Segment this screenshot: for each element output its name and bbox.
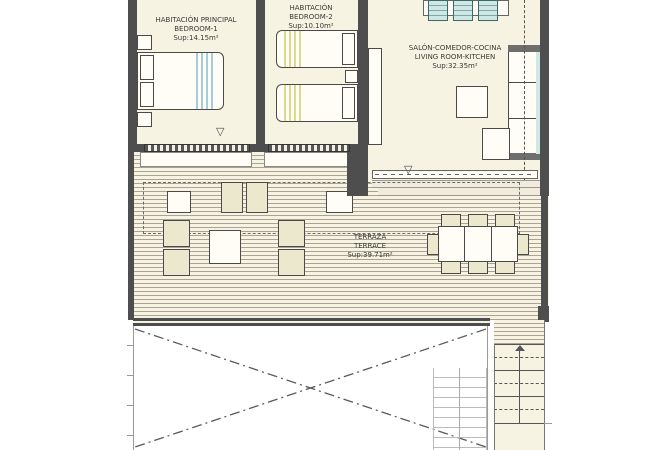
- terrace-edge-wall: [133, 318, 490, 326]
- living-sliding-door-rail: [375, 174, 535, 175]
- bedroom2-nightstand: [345, 70, 358, 83]
- stair-tick: [544, 423, 552, 424]
- lower-staircase-stringer: [459, 368, 460, 450]
- bedroom2-label: HABITACIÓN BEDROOM-2 Sup:10.10m²: [266, 4, 356, 31]
- terrace-coffee-table: [209, 230, 241, 264]
- dining-chair: [468, 260, 488, 274]
- terrace-armchair: [163, 249, 190, 276]
- bedroom1-bed-blanket-stripes: [196, 53, 216, 109]
- terrace-area: Sup:39.71m²: [330, 251, 410, 260]
- dining-chair: [441, 260, 461, 274]
- door-swing-icon: ▽: [216, 126, 224, 137]
- kitchen-stool: [428, 0, 448, 21]
- wall: [347, 144, 368, 196]
- living-label: SALÓN-COMEDOR-COCINA LIVING ROOM-KITCHEN…: [385, 44, 525, 71]
- living-name-es: SALÓN-COMEDOR-COCINA: [385, 44, 525, 53]
- terrace-label: TERRAZA TERRACE Sup:39.71m²: [330, 233, 410, 260]
- bedroom2-pillow: [342, 87, 355, 119]
- door-swing-icon: ▽: [404, 164, 412, 175]
- stair-right-edge: [544, 320, 545, 450]
- stair-left-edge: [494, 344, 495, 450]
- wall: [256, 0, 265, 144]
- terrace-armchair: [221, 182, 243, 213]
- wall: [541, 196, 548, 320]
- bedroom1-name-es: HABITACIÓN PRINCIPAL: [140, 16, 252, 25]
- dining-table: [438, 226, 518, 262]
- bedroom2-pillow: [342, 33, 355, 65]
- bedroom1-area: Sup:14.15m²: [140, 34, 252, 43]
- dining-table-divider: [464, 227, 465, 261]
- living-name-en: LIVING ROOM-KITCHEN: [385, 53, 525, 62]
- bedroom2-bed-blanket-stripes: [284, 31, 302, 67]
- bedroom1-pillow: [140, 55, 154, 80]
- kitchen-stool: [478, 0, 498, 21]
- bedroom2-name-en: BEDROOM-2: [266, 13, 356, 22]
- stair-direction-line: [519, 350, 520, 424]
- dining-chair: [517, 234, 529, 255]
- stair-landing-decking: [494, 320, 544, 344]
- hall-closet: [368, 48, 382, 145]
- wall: [358, 0, 368, 144]
- bedroom2-window-sill: [264, 152, 352, 167]
- lower-staircase: [433, 368, 487, 450]
- bedroom2-name-es: HABITACIÓN: [266, 4, 356, 13]
- section-cut-line: [524, 0, 525, 180]
- terrace-armchair: [163, 220, 190, 247]
- bedroom2-window: [268, 144, 350, 152]
- bedroom1-window-sill: [140, 152, 252, 167]
- terrace-side-table: [167, 191, 191, 213]
- terrace-armchair: [278, 220, 305, 247]
- bedroom1-name-en: BEDROOM-1: [140, 25, 252, 34]
- sofa-chaise: [482, 128, 510, 160]
- living-area: Sup:32.35m²: [385, 62, 525, 71]
- terrace-armchair: [246, 182, 268, 213]
- floor-plan: HABITACIÓN PRINCIPAL BEDROOM-1 Sup:14.15…: [0, 0, 650, 450]
- bedroom1-window: [144, 144, 250, 152]
- terrace-name-en: TERRACE: [330, 242, 410, 251]
- wall: [250, 144, 268, 152]
- terrace-name-es: TERRAZA: [330, 233, 410, 242]
- dining-table-divider: [491, 227, 492, 261]
- bedroom2-bed-blanket-stripes: [284, 85, 302, 121]
- wall: [128, 144, 144, 152]
- living-coffee-table: [456, 86, 488, 118]
- bedroom1-nightstand: [137, 112, 152, 127]
- kitchen-stool: [453, 0, 473, 21]
- bedroom1-pillow: [140, 82, 154, 107]
- wall: [128, 152, 134, 320]
- bedroom1-label: HABITACIÓN PRINCIPAL BEDROOM-1 Sup:14.15…: [140, 16, 252, 43]
- dining-chair: [495, 260, 515, 274]
- wall: [128, 0, 137, 152]
- terrace-armchair: [278, 249, 305, 276]
- stair-up-arrow-icon: [515, 345, 525, 351]
- bedroom2-area: Sup:10.10m²: [266, 22, 356, 31]
- wall: [540, 0, 549, 196]
